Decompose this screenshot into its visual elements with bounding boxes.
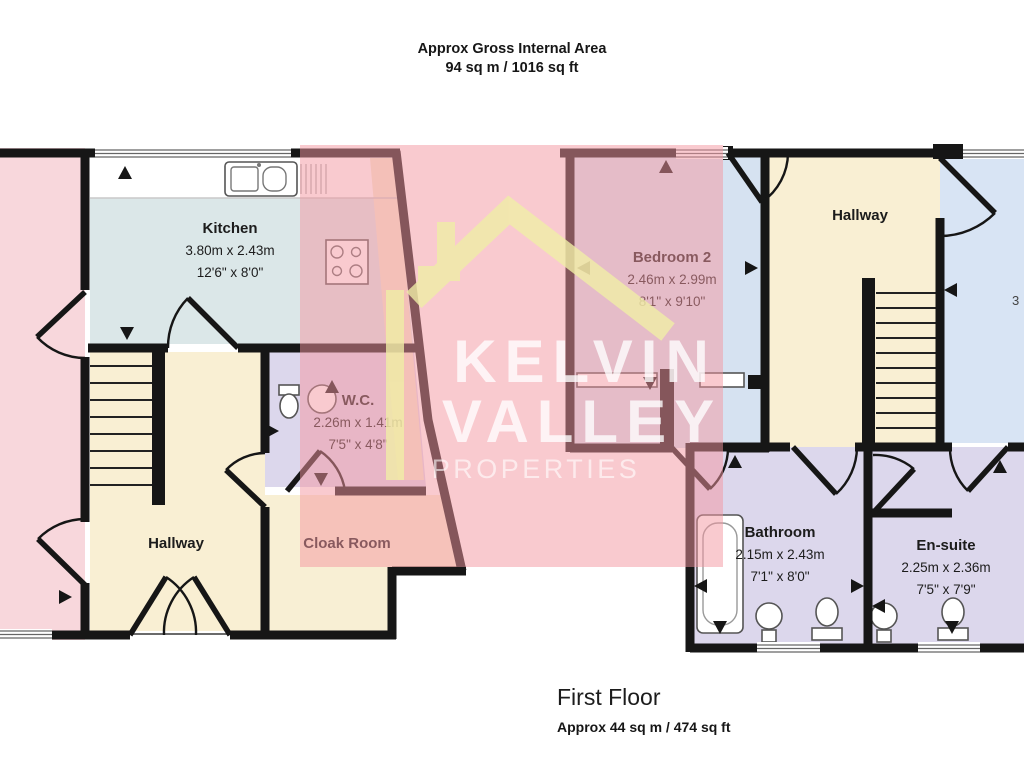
cloak-room-name: Cloak Room <box>303 533 391 555</box>
bathroom-name: Bathroom <box>735 522 824 544</box>
hallway-right-name: Hallway <box>832 205 888 227</box>
hallway-right-floor <box>765 153 940 447</box>
bathroom-dim-ft: 7'1" x 8'0" <box>735 566 824 588</box>
kitchen-sink-icon <box>225 162 326 196</box>
kitchen-dim-m: 3.80m x 2.43m <box>185 240 274 262</box>
right-room-partial-text: 3 <box>1012 293 1019 308</box>
room-label-cloak-room: Cloak Room <box>303 533 391 555</box>
floorplan-drawing <box>0 0 1024 768</box>
bedroom2-dim-m: 2.46m x 2.99m <box>627 269 716 291</box>
hallway-top-window <box>676 147 728 159</box>
hallway-left-floor <box>90 352 265 631</box>
stairs-left-wall <box>152 348 165 505</box>
room-label-hallway-left: Hallway <box>148 533 204 555</box>
room-label-kitchen: Kitchen 3.80m x 2.43m 12'6" x 8'0" <box>185 218 274 284</box>
kitchen-dim-ft: 12'6" x 8'0" <box>185 262 274 284</box>
wc-dim-ft: 7'5" x 4'8" <box>313 434 402 456</box>
room-label-bedroom2: Bedroom 2 2.46m x 2.99m 8'1" x 9'10" <box>627 247 716 313</box>
ensuite-dim-ft: 7'5" x 7'9" <box>901 579 990 601</box>
left-pink-room-floor <box>0 148 85 640</box>
ensuite-name: En-suite <box>901 535 990 557</box>
room-label-hallway-right: Hallway <box>832 205 888 227</box>
room-label-bathroom: Bathroom 2.15m x 2.43m 7'1" x 8'0" <box>735 522 824 588</box>
right-room-corner-wall <box>933 144 963 159</box>
bathroom-window <box>757 642 820 654</box>
kitchen-window <box>95 147 291 159</box>
floor-area: Approx 44 sq m / 474 sq ft <box>557 719 731 735</box>
bedroom2-dim-ft: 8'1" x 9'10" <box>627 291 716 313</box>
wc-toilet-icon <box>279 385 299 418</box>
wc-dim-m: 2.26m x 1.41m <box>313 412 402 434</box>
floorplan-page: Approx Gross Internal Area 94 sq m / 101… <box>0 0 1024 768</box>
right-room-top-window <box>963 147 1024 159</box>
wc-name: W.C. <box>313 390 402 412</box>
bedroom2-name: Bedroom 2 <box>627 247 716 269</box>
floor-title: First Floor <box>557 684 661 711</box>
cloak-room-floor <box>265 495 461 631</box>
bottom-left-window <box>0 629 52 641</box>
bathroom-dim-m: 2.15m x 2.43m <box>735 544 824 566</box>
stairs-right-wall <box>862 278 875 446</box>
ensuite-dim-m: 2.25m x 2.36m <box>901 557 990 579</box>
room-label-ensuite: En-suite 2.25m x 2.36m 7'5" x 7'9" <box>901 535 990 601</box>
hallway-left-name: Hallway <box>148 533 204 555</box>
ensuite-window <box>918 642 980 654</box>
room-label-wc: W.C. 2.26m x 1.41m 7'5" x 4'8" <box>313 390 402 456</box>
kitchen-name: Kitchen <box>185 218 274 240</box>
hob-icon <box>326 240 368 284</box>
